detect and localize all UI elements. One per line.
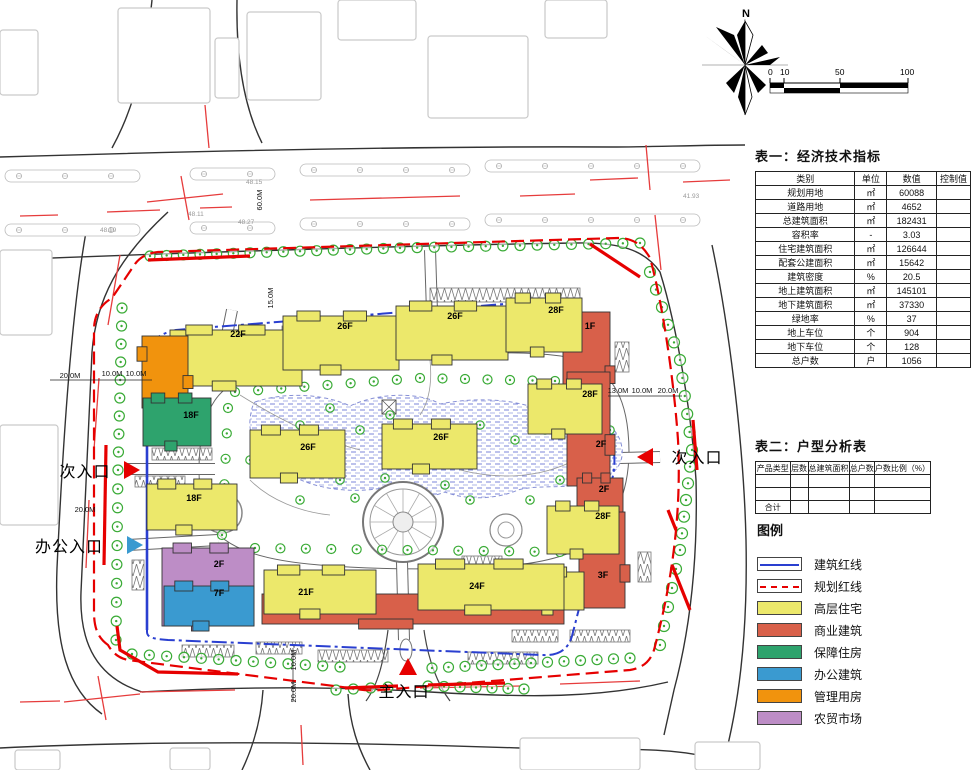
legend-color-swatch: [757, 623, 802, 637]
table1-header-1: 单位: [855, 172, 887, 186]
entrance-次入口: 次入口: [637, 448, 723, 467]
table-cell: 合计: [756, 501, 791, 514]
table1-header-0: 类别: [756, 172, 855, 186]
table-cell: 145101: [887, 284, 937, 298]
rect-shape: [436, 559, 465, 569]
tree-icon: [112, 522, 122, 532]
table-row: 建筑密度%20.5: [756, 270, 971, 284]
building-26F: 26F: [382, 419, 477, 474]
rect-shape: [176, 525, 192, 535]
circle-shape: [596, 658, 598, 660]
tree-icon: [477, 661, 487, 671]
rect-shape: [556, 501, 570, 511]
table-cell: ㎡: [855, 284, 887, 298]
table-row: 规划用地㎡60088: [756, 186, 971, 200]
unit-analysis-panel: 表二：户型分析表 产品类型层数总建筑面积总户数户数比例（%） 合计: [755, 436, 955, 514]
tree-icon: [115, 393, 125, 403]
circle-shape: [533, 550, 535, 552]
table-cell: [937, 354, 971, 368]
circle-shape: [507, 687, 509, 689]
rect-shape: [183, 376, 193, 389]
building-floors-label: 7F: [214, 588, 225, 598]
tree-icon: [222, 429, 231, 438]
circle-shape: [464, 665, 466, 667]
circle-shape: [118, 415, 120, 417]
table-cell: [937, 242, 971, 256]
table-cell: [874, 501, 930, 514]
circle-shape: [399, 247, 401, 249]
road-edge: [712, 245, 746, 768]
table-cell: [790, 501, 808, 514]
circle-shape: [457, 549, 459, 551]
tree-icon: [112, 559, 122, 569]
tree-icon: [677, 528, 688, 539]
table-row: 地下建筑面积㎡37330: [756, 298, 971, 312]
tree-icon: [326, 404, 334, 412]
tree-icon: [300, 660, 310, 670]
table-cell: 地下建筑面积: [756, 298, 855, 312]
road-elevation-label: 41.93: [683, 193, 700, 200]
tree-icon: [625, 653, 635, 663]
circle-shape: [570, 243, 572, 245]
tree-icon: [510, 659, 520, 669]
rect-shape: [300, 609, 320, 619]
circle-shape: [349, 248, 351, 250]
circle-shape: [330, 548, 332, 550]
circle-shape: [315, 249, 317, 251]
table-cell: 4652: [887, 200, 937, 214]
rect-shape: [412, 464, 429, 474]
circle-shape: [221, 534, 223, 536]
rect-shape: [601, 473, 610, 483]
rect-shape: [552, 429, 565, 439]
circle-shape: [671, 587, 673, 589]
legend-item-label: 高层住宅: [814, 600, 862, 617]
entrance-arrow-icon: [399, 658, 417, 675]
legend-line-swatch: [757, 557, 802, 571]
table-cell: 个: [855, 340, 887, 354]
circle-shape: [563, 660, 565, 662]
table2-title: 表二：户型分析表: [755, 436, 955, 455]
table-cell: 904: [887, 326, 937, 340]
rect-shape: [620, 565, 630, 582]
circle-shape: [687, 482, 689, 484]
circle-shape: [305, 547, 307, 549]
dimension-label: 20.0M: [75, 505, 96, 514]
context-building: [428, 36, 528, 118]
scale-bar: 01050100: [768, 67, 914, 93]
road-median: [300, 164, 470, 176]
dimension-label: 10.0M: [126, 369, 147, 378]
rect-shape: [343, 311, 366, 321]
building-floors-label: 28F: [548, 305, 564, 315]
circle-shape: [679, 549, 681, 551]
circle-shape: [355, 548, 357, 550]
circle-shape: [685, 499, 687, 501]
circle-shape: [467, 245, 469, 247]
circle-shape: [252, 660, 254, 662]
circle-shape: [622, 242, 624, 244]
table-cell: 37330: [887, 298, 937, 312]
table-cell: -: [855, 228, 887, 242]
table-cell: [937, 340, 971, 354]
circle-shape: [486, 378, 488, 380]
tree-icon: [179, 652, 189, 662]
circle-shape: [483, 550, 485, 552]
building-floors-label: 1F: [585, 321, 596, 331]
rect-shape: [409, 301, 431, 311]
site-plan-sheet: { "compass": {"label": "N"}, "scale_bar"…: [0, 0, 978, 770]
circle-shape: [117, 451, 119, 453]
scale-tick-label: 10: [780, 67, 790, 77]
circle-shape: [433, 246, 435, 248]
rect-shape: [566, 379, 581, 389]
tree-icon: [543, 657, 553, 667]
circle-shape: [612, 658, 614, 660]
tree-icon: [683, 478, 694, 489]
dimension-label: 60.0M: [255, 190, 264, 211]
table2-body: 合计: [756, 475, 931, 514]
dimension-label: 20.0M: [658, 386, 679, 395]
rect-shape: [570, 549, 583, 559]
table-cell: [756, 488, 791, 501]
road-elevation-label: 48.19: [100, 227, 117, 234]
tree-icon: [356, 426, 364, 434]
table-cell: 容积率: [756, 228, 855, 242]
entrance-主入口: 主入口: [378, 658, 429, 701]
tree-icon: [428, 546, 437, 555]
rect-shape: [537, 379, 552, 389]
context-building: [0, 425, 58, 525]
circle-shape: [349, 382, 351, 384]
circle-shape: [416, 246, 418, 248]
circle-shape: [339, 666, 341, 668]
table-cell: 绿地率: [756, 312, 855, 326]
circle-shape: [419, 377, 421, 379]
table-cell: [937, 326, 971, 340]
circle-shape: [491, 687, 493, 689]
tree-icon: [679, 511, 690, 522]
tree-icon: [386, 411, 394, 419]
table-cell: 60088: [887, 186, 937, 200]
road-centerline: [590, 178, 638, 180]
tree-icon: [116, 339, 126, 349]
legend-color-swatch: [757, 601, 802, 615]
table-cell: [874, 475, 930, 488]
building-26F: 26F: [250, 425, 345, 483]
tree-icon: [530, 547, 539, 556]
tree-icon: [218, 531, 227, 540]
road-edge: [242, 690, 263, 770]
circle-shape: [279, 547, 281, 549]
small-plaza: [490, 514, 522, 546]
circle-shape: [115, 639, 117, 641]
rect-shape: [210, 543, 228, 553]
circle-shape: [579, 659, 581, 661]
circle-shape: [553, 244, 555, 246]
tree-icon: [224, 404, 233, 413]
road-centerline: [107, 210, 160, 212]
circle-shape: [117, 469, 119, 471]
table-cell: [808, 501, 849, 514]
table-row: 容积率-3.03: [756, 228, 971, 242]
circle-shape: [373, 380, 375, 382]
table1-body: 规划用地㎡60088道路用地㎡4652总建筑面积㎡182431容积率-3.03住…: [756, 186, 971, 368]
circle-shape: [119, 361, 121, 363]
legend-item: 商业建筑: [757, 619, 967, 641]
dimension-label: 10.0M: [289, 650, 298, 671]
table-cell: ㎡: [855, 200, 887, 214]
road-elevation-label: 48.11: [188, 211, 204, 218]
table2-header-3: 总户数: [849, 462, 874, 475]
entrance-label: 主入口: [378, 683, 429, 701]
table-cell: [756, 475, 791, 488]
parking-hatch: [638, 552, 651, 582]
tree-icon: [162, 651, 172, 661]
circle-shape: [531, 379, 533, 381]
circle-shape: [199, 253, 201, 255]
table-cell: ㎡: [855, 186, 887, 200]
table-cell: [790, 475, 808, 488]
legend-item-label: 农贸市场: [814, 710, 862, 727]
context-building: [170, 748, 210, 770]
building-24F: 24F: [418, 559, 564, 615]
table-cell: [849, 475, 874, 488]
rect-shape: [320, 365, 341, 375]
table-row: 地下车位个128: [756, 340, 971, 354]
tree-icon: [559, 656, 569, 666]
rect-shape: [277, 565, 299, 575]
circle-shape: [469, 499, 471, 501]
legend-item: 办公建筑: [757, 663, 967, 685]
legend-item-label: 建筑红线: [814, 556, 862, 573]
tree-icon: [113, 484, 123, 494]
table-row: 总户数户1056: [756, 354, 971, 368]
tree-icon: [378, 545, 387, 554]
building-floors-label: 2F: [214, 559, 225, 569]
building-floors-label: 22F: [230, 329, 246, 339]
table-row: 配套公建面积㎡15642: [756, 256, 971, 270]
tree-icon: [117, 303, 127, 313]
rect-shape: [158, 479, 176, 489]
table-row: 绿地率%37: [756, 312, 971, 326]
table2-header-0: 产品类型: [756, 462, 791, 475]
circle-shape: [304, 664, 306, 666]
table-cell: 配套公建面积: [756, 256, 855, 270]
rect-shape: [605, 435, 615, 456]
economic-indicators-table: 类别单位数值控制值 规划用地㎡60088道路用地㎡4652总建筑面积㎡18243…: [755, 171, 971, 368]
tree-icon: [214, 654, 224, 664]
rect-shape: [165, 441, 177, 451]
circle-shape: [509, 379, 511, 381]
rect-shape: [546, 293, 561, 303]
circle-shape: [265, 251, 267, 253]
table-cell: 1056: [887, 354, 937, 368]
compass-and-scale: N 01050100: [690, 5, 930, 125]
tree-icon: [601, 239, 611, 249]
rect-shape: [186, 325, 212, 335]
planning-red-line-solid: [428, 683, 505, 685]
tree-icon: [327, 545, 336, 554]
rect-shape: [175, 581, 193, 591]
rect-shape: [583, 473, 592, 483]
tree-icon: [111, 616, 121, 626]
circle-shape: [659, 644, 661, 646]
circle-shape: [431, 667, 433, 669]
legend-item-label: 规划红线: [814, 578, 862, 595]
table-cell: 地上车位: [756, 326, 855, 340]
table2-header-4: 户数比例（%）: [874, 462, 930, 475]
table-cell: 地下车位: [756, 340, 855, 354]
circle-shape: [326, 384, 328, 386]
circle-shape: [149, 255, 151, 257]
building-footprint: [506, 298, 582, 352]
tree-icon: [114, 429, 124, 439]
table-cell: [937, 214, 971, 228]
road-centerline: [205, 105, 209, 148]
tree-icon: [381, 474, 389, 482]
tree-icon: [444, 662, 454, 672]
table-cell: 规划用地: [756, 186, 855, 200]
circle-shape: [479, 424, 481, 426]
circle-shape: [235, 659, 237, 661]
circle-shape: [546, 661, 548, 663]
circle-shape: [688, 431, 690, 433]
rect-shape: [261, 425, 280, 435]
legend-item: 农贸市场: [757, 707, 967, 729]
circle-shape: [508, 550, 510, 552]
legend-item-label: 商业建筑: [814, 622, 862, 639]
building-floors-label: 21F: [298, 587, 314, 597]
table-row: 地上车位个904: [756, 326, 971, 340]
circle-shape: [684, 395, 686, 397]
circle-shape: [303, 386, 305, 388]
circle-shape: [450, 246, 452, 248]
table1-header-2: 数值: [887, 172, 937, 186]
tree-icon: [113, 465, 123, 475]
circle-shape: [464, 378, 466, 380]
context-building: [338, 0, 416, 40]
circle-shape: [115, 582, 117, 584]
dimension-label: 20.0M: [289, 682, 298, 703]
tree-icon: [427, 663, 437, 673]
circle-shape: [299, 499, 301, 501]
circle-shape: [332, 249, 334, 251]
building-28F: 28F: [547, 501, 619, 559]
table-cell: ㎡: [855, 298, 887, 312]
circle-shape: [329, 407, 331, 409]
building-floors-label: 18F: [183, 410, 199, 420]
table-cell: 128: [887, 340, 937, 354]
circle-shape: [681, 532, 683, 534]
tree-icon: [369, 377, 378, 386]
road-edge: [0, 145, 745, 157]
table-cell: 住宅建筑面积: [756, 242, 855, 256]
tree-icon: [254, 386, 263, 395]
rect-shape: [465, 605, 491, 615]
tree-icon: [682, 409, 693, 420]
table-cell: [808, 488, 849, 501]
rect-shape: [515, 293, 530, 303]
tree-icon: [248, 657, 258, 667]
circle-shape: [384, 477, 386, 479]
dimension-label: 13.0M: [608, 386, 629, 395]
rect-shape: [280, 473, 297, 483]
table-cell: 20.5: [887, 270, 937, 284]
tree-icon: [511, 436, 519, 444]
building-floors-label: 18F: [186, 493, 202, 503]
rect-shape: [454, 301, 476, 311]
entrance-次入口: 次入口: [59, 461, 140, 481]
table-cell: 15642: [887, 256, 937, 270]
road-edge: [348, 694, 370, 770]
building-26F: 26F: [283, 311, 399, 375]
table-cell: [937, 186, 971, 200]
tree-icon: [352, 545, 361, 554]
circle-shape: [280, 387, 282, 389]
circle-shape: [679, 359, 681, 361]
tree-icon: [231, 656, 241, 666]
legend-item: 高层住宅: [757, 597, 967, 619]
rect-shape: [584, 501, 598, 511]
tree-icon: [681, 495, 692, 506]
tree-icon: [506, 376, 515, 385]
tree-icon: [669, 337, 680, 348]
rect-shape: [299, 425, 318, 435]
rect-shape: [194, 479, 212, 489]
legend-item-label: 保障住房: [814, 644, 862, 661]
circle-shape: [559, 479, 561, 481]
circle-shape: [605, 243, 607, 245]
tree-icon: [505, 547, 514, 556]
table-cell: [937, 312, 971, 326]
rect-shape: [151, 393, 165, 403]
table-row: 合计: [756, 501, 931, 514]
table-cell: [937, 270, 971, 284]
north-arrow-icon: [702, 19, 788, 115]
tree-icon: [318, 661, 328, 671]
context-building: [0, 250, 52, 335]
table-cell: 182431: [887, 214, 937, 228]
table-row: 住宅建筑面积㎡126644: [756, 242, 971, 256]
circle-shape: [148, 654, 150, 656]
tree-icon: [403, 546, 412, 555]
north-label: N: [742, 8, 750, 20]
circle-shape: [115, 601, 117, 603]
circle-shape: [381, 548, 383, 550]
circle-shape: [663, 625, 665, 627]
table-cell: 户: [855, 354, 887, 368]
tree-icon: [112, 541, 122, 551]
circle-shape: [365, 248, 367, 250]
tree-icon: [677, 373, 688, 384]
planning-red-line-solid: [590, 244, 640, 277]
scale-tick-label: 100: [900, 67, 914, 77]
circle-shape: [282, 251, 284, 253]
tree-icon: [276, 544, 285, 553]
circle-shape: [673, 341, 675, 343]
circle-shape: [121, 307, 123, 309]
tree-icon: [566, 239, 576, 249]
building-floors-label: 26F: [433, 432, 449, 442]
legend-item: 建筑红线: [757, 553, 967, 575]
rect-shape: [432, 355, 452, 365]
circle-shape: [382, 247, 384, 249]
building-floors-label: 3F: [598, 570, 609, 580]
table-row: 总建筑面积㎡182431: [756, 214, 971, 228]
circle-shape: [629, 657, 631, 659]
circle-shape: [396, 379, 398, 381]
